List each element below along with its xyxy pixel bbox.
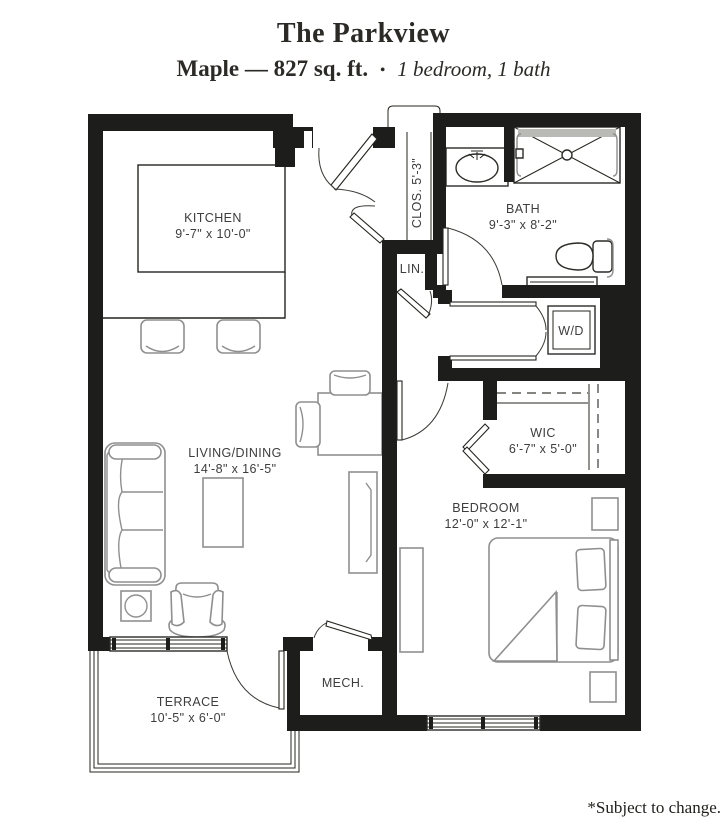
bath-door xyxy=(443,228,502,285)
living-dining-label: LIVING/DINING xyxy=(188,446,281,460)
toilet xyxy=(556,241,612,272)
washer-dryer-label: W/D xyxy=(558,324,584,338)
disclaimer-text: *Subject to change. xyxy=(587,798,721,818)
shower-valve xyxy=(516,149,523,158)
bedroom-window xyxy=(427,716,540,730)
nightstand xyxy=(592,498,618,530)
bathroom-vanity-sink xyxy=(446,148,508,186)
mech-label: MECH. xyxy=(322,676,364,690)
nightstand xyxy=(590,672,616,702)
terrace-door xyxy=(227,651,284,709)
armchair xyxy=(169,583,225,637)
bedroom-door xyxy=(397,381,448,440)
media-console xyxy=(349,472,377,573)
side-table xyxy=(121,591,151,621)
wic-label: WIC xyxy=(530,426,556,440)
linen-label: LIN. xyxy=(400,262,425,276)
entry-alcove-outline xyxy=(388,106,440,128)
kitchen-counter xyxy=(103,165,285,318)
dining-table xyxy=(296,371,382,455)
entry-door xyxy=(319,134,377,190)
coffee-table xyxy=(203,478,243,547)
shower xyxy=(514,127,620,183)
bed xyxy=(489,538,618,662)
bedroom-label: BEDROOM xyxy=(452,501,519,515)
sofa xyxy=(105,443,165,585)
living-room-window xyxy=(110,637,227,651)
washer-dryer-doors xyxy=(450,302,546,360)
bar-stool xyxy=(141,320,184,353)
terrace-dims: 10'-5" x 6'-0" xyxy=(150,711,226,725)
bath-dims: 9'-3" x 8'-2" xyxy=(489,218,557,232)
bedroom-dims: 12'-0" x 12'-1" xyxy=(445,517,528,531)
floor-plan-page: The Parkview Maple — 827 sq. ft. • 1 bed… xyxy=(0,0,727,826)
wic-bifold-door xyxy=(463,424,489,474)
living-dining-dims: 14'-8" x 16'-5" xyxy=(194,462,277,476)
floor-plan-drawing: KITCHEN 9'-7" x 10'-0" CLOS. 5'-3" BATH … xyxy=(0,0,727,826)
bar-stool xyxy=(217,320,260,353)
kitchen-label: KITCHEN xyxy=(184,211,242,225)
entry-closet-bifold-door xyxy=(334,189,384,243)
mech-door xyxy=(314,621,372,640)
linen-closet-door xyxy=(397,289,432,318)
terrace-label: TERRACE xyxy=(157,695,220,709)
wic-dims: 6'-7" x 5'-0" xyxy=(509,442,577,456)
dresser xyxy=(400,548,423,652)
kitchen-dims: 9'-7" x 10'-0" xyxy=(175,227,251,241)
bath-label: BATH xyxy=(506,202,540,216)
closet-label: CLOS. 5'-3" xyxy=(410,158,424,228)
